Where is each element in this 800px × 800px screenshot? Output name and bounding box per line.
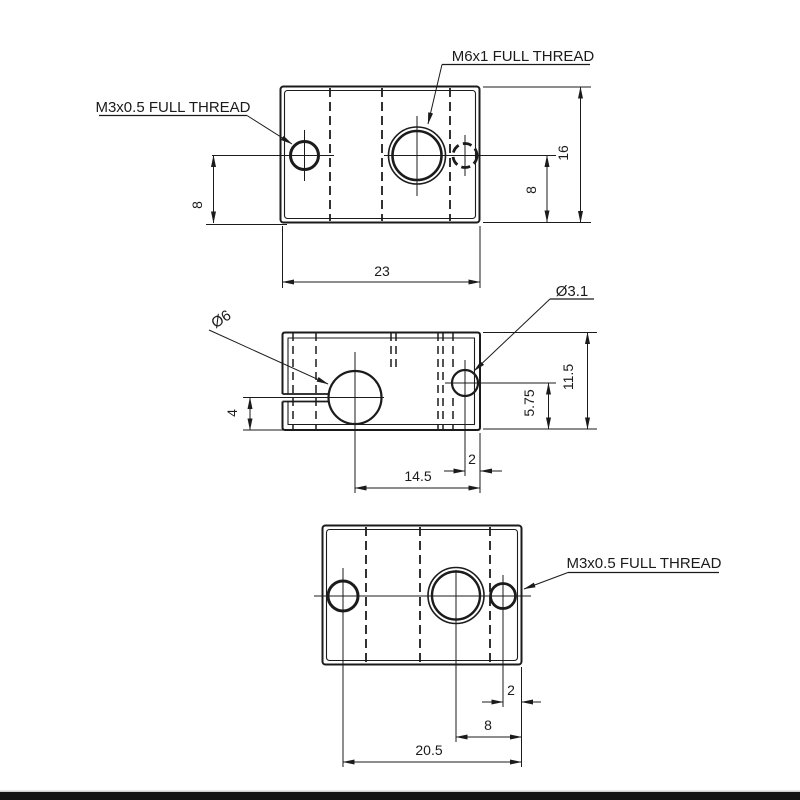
leader-line bbox=[524, 573, 568, 590]
drawing-canvas: M6x1 FULL THREAD M3x0.5 FULL THREAD 8 8 … bbox=[0, 0, 800, 800]
label-m3-thread-top: M3x0.5 FULL THREAD bbox=[95, 99, 250, 116]
dim-front-575: 5.75 bbox=[521, 389, 537, 416]
label-dia6: Ø6 bbox=[208, 307, 234, 332]
view-front: Ø6 Ø3.1 4 5.75 11.5 14.5 2 bbox=[208, 283, 597, 493]
bottom-bar-fill bbox=[0, 792, 800, 800]
dim-top-16: 16 bbox=[555, 145, 571, 161]
dim-top-left-8: 8 bbox=[189, 201, 205, 209]
bottom-bar-highlight bbox=[0, 791, 800, 793]
bottom-view-inner-outline bbox=[327, 530, 518, 661]
dim-bottom-205: 20.5 bbox=[415, 742, 442, 758]
dim-front-115: 11.5 bbox=[560, 364, 576, 390]
technical-drawing: M6x1 FULL THREAD M3x0.5 FULL THREAD 8 8 … bbox=[0, 0, 800, 800]
leader-line bbox=[428, 65, 442, 125]
dim-front-145: 14.5 bbox=[404, 468, 431, 484]
dim-bottom-8: 8 bbox=[484, 717, 492, 733]
bottom-bar bbox=[0, 791, 800, 800]
label-m6-thread: M6x1 FULL THREAD bbox=[452, 48, 595, 65]
label-dia31: Ø3.1 bbox=[556, 283, 589, 300]
dim-front-4: 4 bbox=[224, 409, 240, 417]
dim-top-23: 23 bbox=[374, 263, 390, 279]
view-top: M6x1 FULL THREAD M3x0.5 FULL THREAD 8 8 … bbox=[95, 48, 594, 288]
dim-bottom-2: 2 bbox=[507, 682, 515, 698]
dim-top-right-8: 8 bbox=[523, 186, 539, 194]
leader-line bbox=[474, 299, 550, 371]
leader-line bbox=[247, 116, 292, 145]
front-view-outline bbox=[283, 333, 481, 431]
label-m3-thread-bottom: M3x0.5 FULL THREAD bbox=[566, 555, 721, 572]
top-view-inner-outline bbox=[285, 91, 476, 219]
view-bottom: M3x0.5 FULL THREAD 2 8 20.5 bbox=[314, 526, 722, 768]
dim-front-2: 2 bbox=[468, 451, 476, 467]
